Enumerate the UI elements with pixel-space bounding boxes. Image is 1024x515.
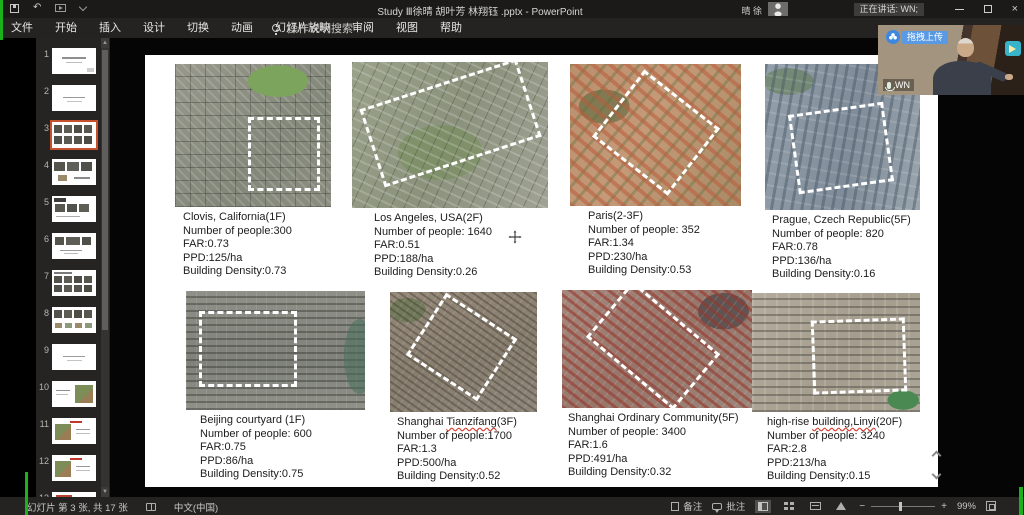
slide-number: 6 <box>36 233 49 244</box>
slide-thumbnail[interactable] <box>52 159 96 185</box>
ribbon-tab[interactable]: 插入 <box>88 18 132 38</box>
density-case-card[interactable]: Shanghai Tianzifang(3F) Number of people… <box>390 292 537 484</box>
thumbnail-list: 1 2 3 4 <box>36 48 98 497</box>
case-caption[interactable]: Clovis, California(1F) Number of people:… <box>175 211 331 279</box>
aerial-photo[interactable] <box>186 291 365 410</box>
case-title: high-rise <box>767 416 812 428</box>
thumbnail-row: 9 <box>36 344 98 370</box>
case-title-suffix: (20F) <box>876 416 902 428</box>
case-title-line: Paris(2-3F) <box>588 210 741 224</box>
normal-view-icon <box>758 502 768 511</box>
case-title: Prague, Czech Republic(5F) <box>772 214 911 226</box>
thumbnail-row: 11 <box>36 418 98 444</box>
aerial-photo[interactable] <box>352 62 548 208</box>
cloud-drive-icon[interactable] <box>886 30 900 44</box>
thumbnail-row: 6 <box>36 233 98 259</box>
screenshare-border-bottom-left <box>25 472 28 515</box>
case-caption[interactable]: high-rise building,Linyi(20F) Number of … <box>752 416 920 484</box>
ribbon-tab[interactable]: 开始 <box>44 18 88 38</box>
case-title: Clovis, California(1F) <box>183 211 286 223</box>
density-case-card[interactable]: Clovis, California(1F) Number of people:… <box>175 64 331 279</box>
notes-icon <box>671 502 679 511</box>
case-title: Shanghai Ordinary Community(5F) <box>568 412 739 424</box>
slide-number: 12 <box>36 455 49 466</box>
slide-number: 3 <box>36 122 49 133</box>
density-line: Building Density:0.53 <box>588 264 741 278</box>
ribbon-tab[interactable]: 帮助 <box>429 18 473 38</box>
zoom-out-icon[interactable]: − <box>859 501 865 512</box>
scrollbar-thumb[interactable] <box>102 50 108 330</box>
account-name[interactable]: 晴 徐 <box>741 4 762 17</box>
reading-view-icon <box>810 502 821 510</box>
thumbnail-row: 2 <box>36 85 98 111</box>
slide-number: 4 <box>36 159 49 170</box>
zoom-control: − + <box>859 501 947 512</box>
slide-number: 9 <box>36 344 49 355</box>
slide-thumbnail[interactable] <box>52 381 96 407</box>
people-line: Number of people: 820 <box>772 228 920 242</box>
far-line: FAR:0.75 <box>200 441 365 455</box>
speaker-head <box>957 38 974 57</box>
minimize-button[interactable] <box>955 9 964 10</box>
start-slideshow-icon[interactable] <box>55 4 66 12</box>
aerial-photo[interactable] <box>752 293 920 412</box>
window-controls: × <box>955 2 1018 16</box>
slide-number: 11 <box>36 418 49 429</box>
people-line: Number of people:1700 <box>397 430 537 444</box>
case-title: Los Angeles, USA(2F) <box>374 212 483 224</box>
far-line: FAR:1.6 <box>568 439 752 453</box>
case-title-line: Shanghai Ordinary Community(5F) <box>568 412 752 426</box>
case-title-line: Clovis, California(1F) <box>183 211 331 225</box>
thumbnail-row: 7 <box>36 270 98 296</box>
scroll-down-icon[interactable]: ▼ <box>101 487 109 497</box>
speaker-hand <box>1005 74 1013 80</box>
block-boundary-dashed-overlay <box>586 290 720 408</box>
upload-chip[interactable]: 拖拽上传 <box>886 30 948 44</box>
density-case-card[interactable]: high-rise building,Linyi(20F) Number of … <box>752 293 920 484</box>
far-line: FAR:1.34 <box>588 237 741 251</box>
undo-icon[interactable]: ↶ <box>33 3 41 13</box>
aerial-photo[interactable] <box>570 64 741 206</box>
thumbnail-row: 8 <box>36 307 98 333</box>
block-boundary-dashed-overlay <box>359 62 541 188</box>
density-line: Building Density:0.15 <box>767 470 920 484</box>
case-caption[interactable]: Los Angeles, USA(2F) Number of people: 1… <box>352 212 548 280</box>
people-line: Number of people: 1640 <box>374 226 548 240</box>
avatar[interactable] <box>768 2 788 16</box>
quick-access-toolbar: ↶ <box>10 3 86 13</box>
ppd-line: PPD:188/ha <box>374 253 548 267</box>
case-caption[interactable]: Shanghai Tianzifang(3F) Number of people… <box>390 416 537 484</box>
case-title-line: Prague, Czech Republic(5F) <box>772 214 920 228</box>
close-button[interactable]: × <box>1012 4 1018 15</box>
zoom-in-icon[interactable]: + <box>941 501 947 512</box>
tell-me-search[interactable]: 操作说明搜索 <box>280 20 353 36</box>
slide-thumbnail[interactable] <box>52 455 96 481</box>
speaker-name: WN <box>895 80 910 90</box>
zoom-track <box>871 506 935 507</box>
ribbon-tab[interactable]: 切换 <box>176 18 220 38</box>
notes-label: 备注 <box>683 499 702 513</box>
thumbnail-row: 10 <box>36 381 98 407</box>
ppd-line: PPD:230/ha <box>588 251 741 265</box>
slide-thumbnail[interactable] <box>52 307 96 333</box>
slide-nav-buttons <box>933 452 940 478</box>
screenshare-border-top-left <box>0 0 3 40</box>
slideshow-icon <box>836 502 846 510</box>
aerial-photo[interactable] <box>175 64 331 207</box>
ribbon-tab[interactable]: 设计 <box>132 18 176 38</box>
aerial-photo[interactable] <box>562 290 752 408</box>
case-title-line: Shanghai Tianzifang(3F) <box>397 416 537 430</box>
block-boundary-dashed-overlay <box>788 102 894 195</box>
thumbnail-row: 1 <box>36 48 98 74</box>
slide-number: 8 <box>36 307 49 318</box>
restore-button[interactable] <box>984 5 992 13</box>
slide-number: 5 <box>36 196 49 207</box>
view-normal-button[interactable] <box>755 500 771 513</box>
share-arrow-icon[interactable] <box>1005 41 1021 56</box>
slide-sorter-icon <box>784 502 794 511</box>
density-line: Building Density:0.32 <box>568 466 752 480</box>
far-line: FAR:2.8 <box>767 443 920 457</box>
slide-thumbnail[interactable] <box>52 270 96 296</box>
slide-thumbnail[interactable] <box>52 418 96 444</box>
ribbon-tab-bar: 文件 开始 插入 设计 切换 动画 幻灯片放映 审阅 视图 帮助 <box>0 18 1024 38</box>
far-line: FAR:0.78 <box>772 241 920 255</box>
case-title: Paris(2-3F) <box>588 210 643 222</box>
spellcheck-icon[interactable] <box>146 503 156 511</box>
screen: ↶ Study Ⅲ徐晴 胡叶芳 林翔钰 .pptx - PowerPoint 晴… <box>0 0 1024 515</box>
zoom-thumb[interactable] <box>899 502 902 511</box>
comments-toggle[interactable]: 批注 <box>712 499 745 513</box>
case-title-misspelled: Tianzifang <box>446 416 496 428</box>
slide-thumbnail[interactable] <box>52 85 96 111</box>
density-line: Building Density:0.52 <box>397 470 537 484</box>
ppd-line: PPD:136/ha <box>772 255 920 269</box>
tell-me-lightbulb-icon <box>272 24 280 32</box>
status-bar: 幻灯片 第 3 张, 共 17 张 中文(中国) 备注 批注 − + 99% <box>0 497 1024 515</box>
view-sorter-button[interactable] <box>781 500 797 513</box>
far-line: FAR:1.3 <box>397 443 537 457</box>
slide-thumbnail[interactable] <box>52 344 96 370</box>
slide-counter: 幻灯片 第 3 张, 共 17 张 <box>27 500 128 514</box>
ribbon-tab[interactable]: 视图 <box>385 18 429 38</box>
people-line: Number of people:300 <box>183 225 331 239</box>
speaker-name-tag: WN <box>883 79 914 91</box>
density-line: Building Density:0.73 <box>183 265 331 279</box>
slide-canvas: Clovis, California(1F) Number of people:… <box>110 38 1024 497</box>
slide-number: 10 <box>36 381 49 392</box>
microphone-icon <box>887 82 891 89</box>
case-title: Beijing courtyard (1F) <box>200 414 305 426</box>
case-title-line: high-rise building,Linyi(20F) <box>767 416 920 430</box>
density-line: Building Density:0.26 <box>374 266 548 280</box>
people-line: Number of people: 3240 <box>767 430 920 444</box>
thumbnail-scrollbar[interactable]: ▲ ▼ <box>101 38 109 497</box>
slide-thumbnail[interactable] <box>52 122 96 148</box>
zoom-percentage[interactable]: 99% <box>957 501 976 512</box>
screenshare-border-bottom-right <box>1019 487 1023 515</box>
ribbon-tab[interactable]: 文件 <box>0 18 44 38</box>
case-title-line: Los Angeles, USA(2F) <box>374 212 548 226</box>
slide: Clovis, California(1F) Number of people:… <box>145 55 938 487</box>
notes-toggle[interactable]: 备注 <box>671 499 702 513</box>
case-title: Shanghai <box>397 416 446 428</box>
case-caption[interactable]: Prague, Czech Republic(5F) Number of peo… <box>765 214 920 282</box>
window-title: Study Ⅲ徐晴 胡叶芳 林翔钰 .pptx - PowerPoint <box>240 3 720 18</box>
fit-to-window-icon[interactable] <box>986 501 996 511</box>
block-boundary-dashed-overlay <box>199 311 297 387</box>
case-caption[interactable]: Shanghai Ordinary Community(5F) Number o… <box>562 412 752 480</box>
comments-label: 批注 <box>726 499 745 513</box>
block-boundary-dashed-overlay <box>811 318 908 395</box>
far-line: FAR:0.51 <box>374 239 548 253</box>
meeting-speaking-badge: 正在讲话: WN; <box>854 3 925 16</box>
slide-thumbnail[interactable] <box>52 48 96 74</box>
case-title-suffix: (3F) <box>497 416 517 428</box>
slide-number: 1 <box>36 48 49 59</box>
ppd-line: PPD:86/ha <box>200 455 365 469</box>
status-right: 备注 批注 − + 99% <box>671 499 996 513</box>
people-line: Number of people: 600 <box>200 428 365 442</box>
density-case-card[interactable]: Paris(2-3F) Number of people: 352 FAR:1.… <box>570 64 741 278</box>
slide-thumbnail[interactable] <box>52 233 96 259</box>
density-case-card[interactable]: Los Angeles, USA(2F) Number of people: 1… <box>352 62 548 280</box>
block-boundary-dashed-overlay <box>592 69 720 195</box>
density-case-card[interactable]: Prague, Czech Republic(5F) Number of peo… <box>765 64 920 282</box>
ppd-line: PPD:491/ha <box>568 453 752 467</box>
thumbnail-row: 4 <box>36 159 98 185</box>
next-slide-icon[interactable] <box>932 470 942 480</box>
slide-number: 2 <box>36 85 49 96</box>
comments-icon <box>712 503 722 510</box>
density-line: Building Density:0.16 <box>772 268 920 282</box>
density-line: Building Density:0.75 <box>200 468 365 482</box>
thumbnail-row: 12 <box>36 455 98 481</box>
zoom-slider[interactable] <box>871 501 935 512</box>
ppd-line: PPD:500/ha <box>397 457 537 471</box>
case-title-misspelled: building,Linyi <box>812 416 876 428</box>
far-line: FAR:0.73 <box>183 238 331 252</box>
title-bar: ↶ Study Ⅲ徐晴 胡叶芳 林翔钰 .pptx - PowerPoint 晴… <box>0 0 1024 18</box>
people-line: Number of people: 352 <box>588 224 741 238</box>
slide-thumbnail-panel: 1 2 3 4 <box>36 38 110 497</box>
customize-toolbar-caret-icon[interactable] <box>79 2 87 10</box>
save-icon[interactable] <box>10 4 19 13</box>
case-title-line: Beijing courtyard (1F) <box>200 414 365 428</box>
slide-thumbnail[interactable] <box>52 196 96 222</box>
drag-upload-label[interactable]: 拖拽上传 <box>902 31 948 44</box>
ppd-line: PPD:213/ha <box>767 457 920 471</box>
scroll-up-icon[interactable]: ▲ <box>101 38 109 48</box>
thumbnail-row: 3 <box>36 122 98 148</box>
previous-slide-icon[interactable] <box>932 451 942 461</box>
thumbnail-row: 5 <box>36 196 98 222</box>
density-case-card[interactable]: Shanghai Ordinary Community(5F) Number o… <box>562 290 752 480</box>
ppd-line: PPD:125/ha <box>183 252 331 266</box>
ribbon-tab[interactable]: 动画 <box>220 18 264 38</box>
slideshow-button[interactable] <box>833 500 849 513</box>
case-caption[interactable]: Beijing courtyard (1F) Number of people:… <box>186 414 365 482</box>
block-boundary-dashed-overlay <box>248 117 320 191</box>
people-line: Number of people: 3400 <box>568 426 752 440</box>
density-case-card[interactable]: Beijing courtyard (1F) Number of people:… <box>186 291 365 482</box>
meeting-video-overlay[interactable]: 拖拽上传 WN <box>878 25 1024 95</box>
case-caption[interactable]: Paris(2-3F) Number of people: 352 FAR:1.… <box>570 210 741 278</box>
slide-number: 7 <box>36 270 49 281</box>
aerial-photo[interactable] <box>390 292 537 412</box>
block-boundary-dashed-overlay <box>406 293 518 402</box>
language-indicator[interactable]: 中文(中国) <box>174 500 218 514</box>
workspace: 1 2 3 4 <box>0 38 1024 497</box>
status-left: 幻灯片 第 3 张, 共 17 张 中文(中国) <box>27 500 218 514</box>
view-reading-button[interactable] <box>807 500 823 513</box>
